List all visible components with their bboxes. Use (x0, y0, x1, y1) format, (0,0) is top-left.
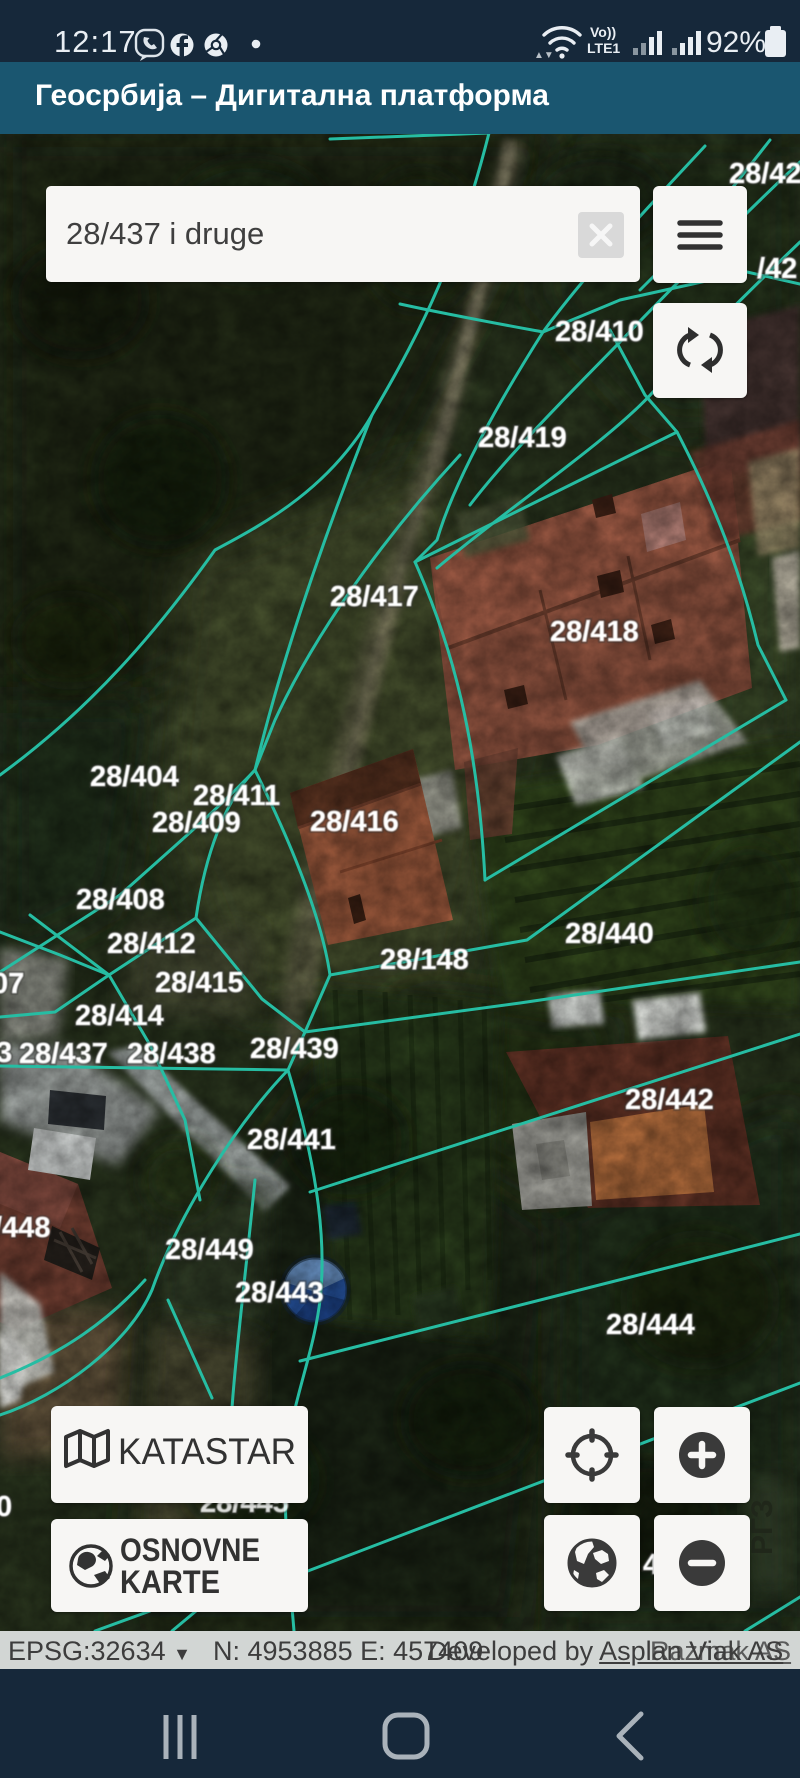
svg-text:28/440: 28/440 (565, 918, 654, 950)
svg-text:28/414: 28/414 (75, 1000, 164, 1032)
svg-text:KARTE: KARTE (120, 1564, 220, 1600)
svg-text:28/412: 28/412 (107, 928, 196, 960)
svg-text:28/409: 28/409 (152, 807, 241, 839)
svg-text:28/442: 28/442 (625, 1084, 714, 1116)
svg-text:28/416: 28/416 (310, 806, 399, 838)
svg-text:28/449: 28/449 (165, 1234, 254, 1266)
svg-text:07: 07 (0, 968, 24, 1000)
svg-text:28/419: 28/419 (478, 422, 567, 454)
svg-text:Vo)): Vo)) (590, 24, 616, 40)
svg-text:0: 0 (0, 1491, 12, 1523)
svg-text:KATASTAR: KATASTAR (118, 1431, 296, 1472)
svg-text:28/444: 28/444 (606, 1309, 695, 1341)
svg-text:28/439: 28/439 (250, 1033, 339, 1065)
svg-text:LTE1: LTE1 (587, 40, 620, 56)
svg-text:РГЗ: РГЗ (746, 1499, 779, 1555)
svg-text:28/148: 28/148 (380, 944, 469, 976)
svg-text:3: 3 (0, 1037, 12, 1069)
svg-text:/448: /448 (0, 1212, 50, 1244)
svg-text:28/408: 28/408 (76, 884, 165, 916)
svg-text:92%: 92% (706, 26, 766, 59)
svg-text:28/438: 28/438 (127, 1038, 216, 1070)
svg-text:28/417: 28/417 (330, 581, 419, 613)
svg-text:28/437: 28/437 (19, 1038, 108, 1070)
svg-text:28/418: 28/418 (550, 616, 639, 648)
svg-text:/42: /42 (757, 253, 797, 285)
svg-text:▲▼: ▲▼ (534, 50, 554, 61)
svg-text:28/410: 28/410 (555, 316, 644, 348)
svg-text:28/441: 28/441 (247, 1124, 336, 1156)
svg-text:28/404: 28/404 (90, 761, 179, 793)
svg-text:28/443: 28/443 (235, 1277, 324, 1309)
svg-text:28/415: 28/415 (155, 967, 244, 999)
svg-text:OSNOVNE: OSNOVNE (120, 1532, 260, 1568)
